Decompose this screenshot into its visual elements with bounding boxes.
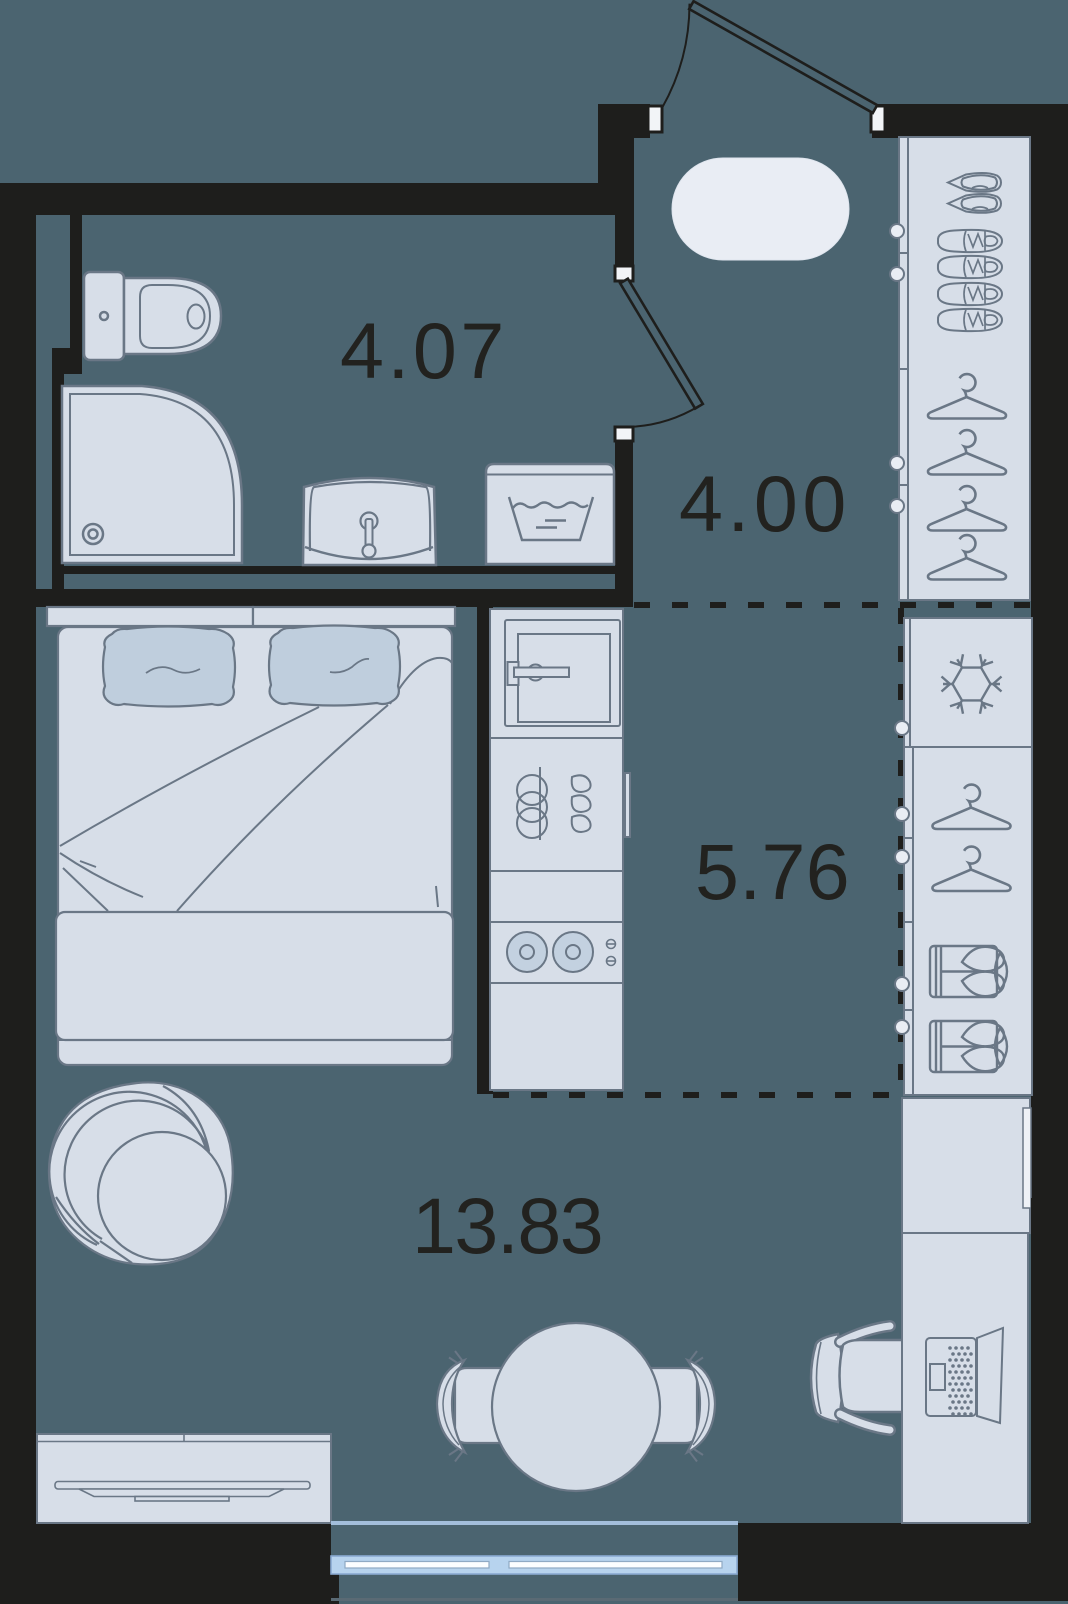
svg-text:13.83: 13.83 — [412, 1181, 602, 1270]
svg-text:4.00: 4.00 — [679, 459, 851, 548]
svg-text:4.07: 4.07 — [340, 306, 508, 395]
svg-text:5.76: 5.76 — [695, 827, 850, 916]
